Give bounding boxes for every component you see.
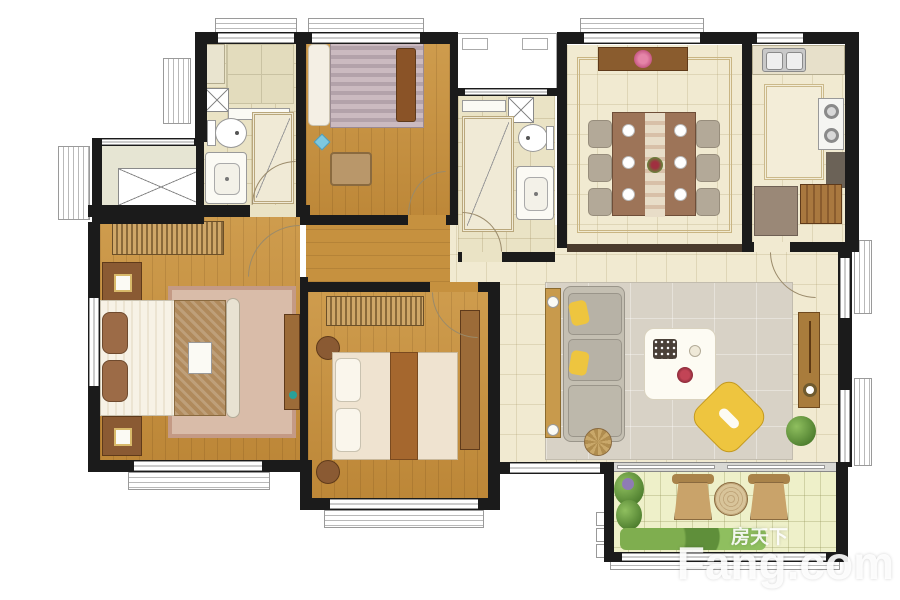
toilet-flush-dot bbox=[526, 136, 530, 140]
door-gap bbox=[754, 242, 790, 252]
dining-chair bbox=[696, 154, 720, 182]
ac-unit-icon bbox=[118, 168, 204, 206]
speaker-icon bbox=[803, 383, 817, 397]
bed-pillow bbox=[335, 408, 361, 452]
master-wardrobe bbox=[112, 221, 224, 255]
toilet-flush-dot bbox=[235, 131, 239, 135]
wall-segment bbox=[450, 95, 458, 215]
window-sill bbox=[58, 146, 90, 220]
window bbox=[330, 499, 478, 509]
shower-tiles bbox=[226, 44, 294, 104]
floor-plan: 房天下 Fang.com bbox=[0, 0, 900, 600]
vanity-sink bbox=[516, 166, 554, 220]
nightstand bbox=[102, 262, 142, 302]
door-gap bbox=[250, 205, 296, 217]
wall-segment bbox=[195, 32, 207, 142]
window bbox=[102, 139, 194, 145]
flower-vase-icon bbox=[634, 50, 652, 68]
shower-door-line bbox=[467, 122, 509, 226]
lounge-cushion bbox=[717, 406, 741, 430]
balcony-table bbox=[714, 482, 748, 516]
sliding-pane bbox=[727, 465, 825, 469]
bed-tray bbox=[188, 342, 212, 374]
balcony-window-wall bbox=[608, 462, 840, 472]
burner bbox=[824, 128, 839, 143]
master-dresser bbox=[284, 314, 300, 410]
nightstand bbox=[102, 416, 142, 456]
wall-segment bbox=[845, 32, 859, 252]
table-centerpiece bbox=[647, 157, 663, 173]
potted-plant bbox=[786, 416, 816, 446]
lamp-icon bbox=[114, 274, 132, 292]
towel-shelf bbox=[462, 100, 506, 112]
window bbox=[584, 33, 700, 43]
burner bbox=[824, 104, 839, 119]
console-lamp bbox=[547, 296, 559, 308]
wall-segment bbox=[742, 40, 752, 244]
bath-cabinet bbox=[205, 44, 225, 84]
bedroom2-wardrobe bbox=[326, 296, 424, 326]
door-gap bbox=[430, 282, 478, 292]
kitchen-cabinet bbox=[800, 184, 842, 224]
dining-chair bbox=[588, 188, 612, 216]
kitchen-sink-icon bbox=[762, 48, 806, 72]
wall-segment bbox=[557, 40, 567, 248]
window bbox=[840, 258, 850, 318]
master-bed bbox=[100, 300, 242, 416]
plate bbox=[622, 156, 635, 169]
window bbox=[312, 33, 420, 43]
window bbox=[89, 298, 99, 386]
bedroom3-bed bbox=[306, 42, 424, 128]
wall-segment bbox=[300, 217, 308, 225]
window bbox=[840, 390, 850, 462]
bed-pillow bbox=[335, 358, 361, 402]
dining-chair bbox=[696, 188, 720, 216]
dining-chair bbox=[696, 120, 720, 148]
bed-runner bbox=[390, 352, 418, 460]
fridge-icon bbox=[754, 186, 798, 236]
game-box bbox=[653, 339, 677, 359]
plate bbox=[622, 124, 635, 137]
plate bbox=[674, 188, 687, 201]
small-tray bbox=[689, 345, 701, 357]
light-well-frame bbox=[522, 38, 548, 50]
sofa-console bbox=[545, 288, 561, 438]
sofa bbox=[563, 286, 625, 442]
tv-line bbox=[809, 321, 811, 373]
sink-basin-right bbox=[786, 52, 803, 70]
balcony-plant bbox=[616, 500, 642, 530]
toilet-icon bbox=[207, 118, 247, 148]
plate bbox=[674, 156, 687, 169]
wall-segment bbox=[296, 40, 306, 215]
wicker-armchair bbox=[674, 482, 712, 520]
coffee-table bbox=[644, 328, 716, 400]
toilet-icon bbox=[518, 124, 554, 152]
bed-pillows bbox=[308, 44, 330, 126]
watermark-en: Fang.com bbox=[677, 540, 894, 586]
pouf bbox=[584, 428, 612, 456]
toilet-bowl bbox=[518, 124, 548, 152]
floor-cushion bbox=[330, 152, 372, 186]
window bbox=[218, 33, 294, 43]
window bbox=[134, 461, 262, 471]
bedroom2-bed bbox=[332, 352, 458, 460]
wall-segment bbox=[488, 282, 500, 510]
window-sill bbox=[324, 510, 484, 528]
corridor-floor bbox=[306, 225, 450, 282]
tv-console bbox=[798, 312, 820, 408]
kitchen-island bbox=[764, 84, 824, 180]
dresser-accent-dot bbox=[289, 391, 297, 399]
dining-chair bbox=[588, 120, 612, 148]
window bbox=[510, 463, 600, 473]
flowers bbox=[677, 367, 693, 383]
sink-drain-dot bbox=[225, 177, 229, 181]
washing-machine-icon bbox=[205, 88, 229, 112]
vanity-sink bbox=[205, 152, 247, 204]
wall-segment bbox=[300, 277, 308, 470]
nightstand-round bbox=[316, 460, 340, 484]
bed-bench bbox=[396, 48, 416, 122]
sink-basin-left bbox=[766, 52, 783, 70]
toilet-bowl bbox=[215, 118, 247, 148]
door-gap bbox=[408, 215, 446, 225]
stove-icon bbox=[818, 98, 844, 150]
headboard-cushion bbox=[102, 360, 128, 402]
lamp-icon bbox=[114, 428, 132, 446]
counter-block bbox=[826, 152, 845, 188]
footboard bbox=[226, 298, 240, 418]
plate bbox=[622, 188, 635, 201]
sink-drain-dot bbox=[534, 192, 538, 196]
wicker-armchair bbox=[750, 482, 788, 520]
dining-chair bbox=[588, 154, 612, 182]
console-lamp bbox=[547, 424, 559, 436]
sliding-pane bbox=[617, 465, 715, 469]
threshold bbox=[567, 244, 742, 252]
window-sill bbox=[854, 378, 872, 466]
toilet-tank bbox=[546, 126, 554, 150]
headboard-cushion bbox=[102, 312, 128, 354]
window bbox=[465, 89, 547, 95]
plate bbox=[674, 124, 687, 137]
purple-flowers bbox=[622, 478, 634, 490]
wall-segment bbox=[450, 32, 458, 95]
window-sill bbox=[163, 58, 191, 124]
wall-segment bbox=[92, 216, 204, 224]
wall-segment bbox=[604, 462, 614, 562]
window-sill bbox=[128, 472, 270, 490]
window bbox=[757, 33, 803, 43]
door-gap bbox=[462, 252, 502, 262]
light-well-frame bbox=[462, 38, 488, 50]
